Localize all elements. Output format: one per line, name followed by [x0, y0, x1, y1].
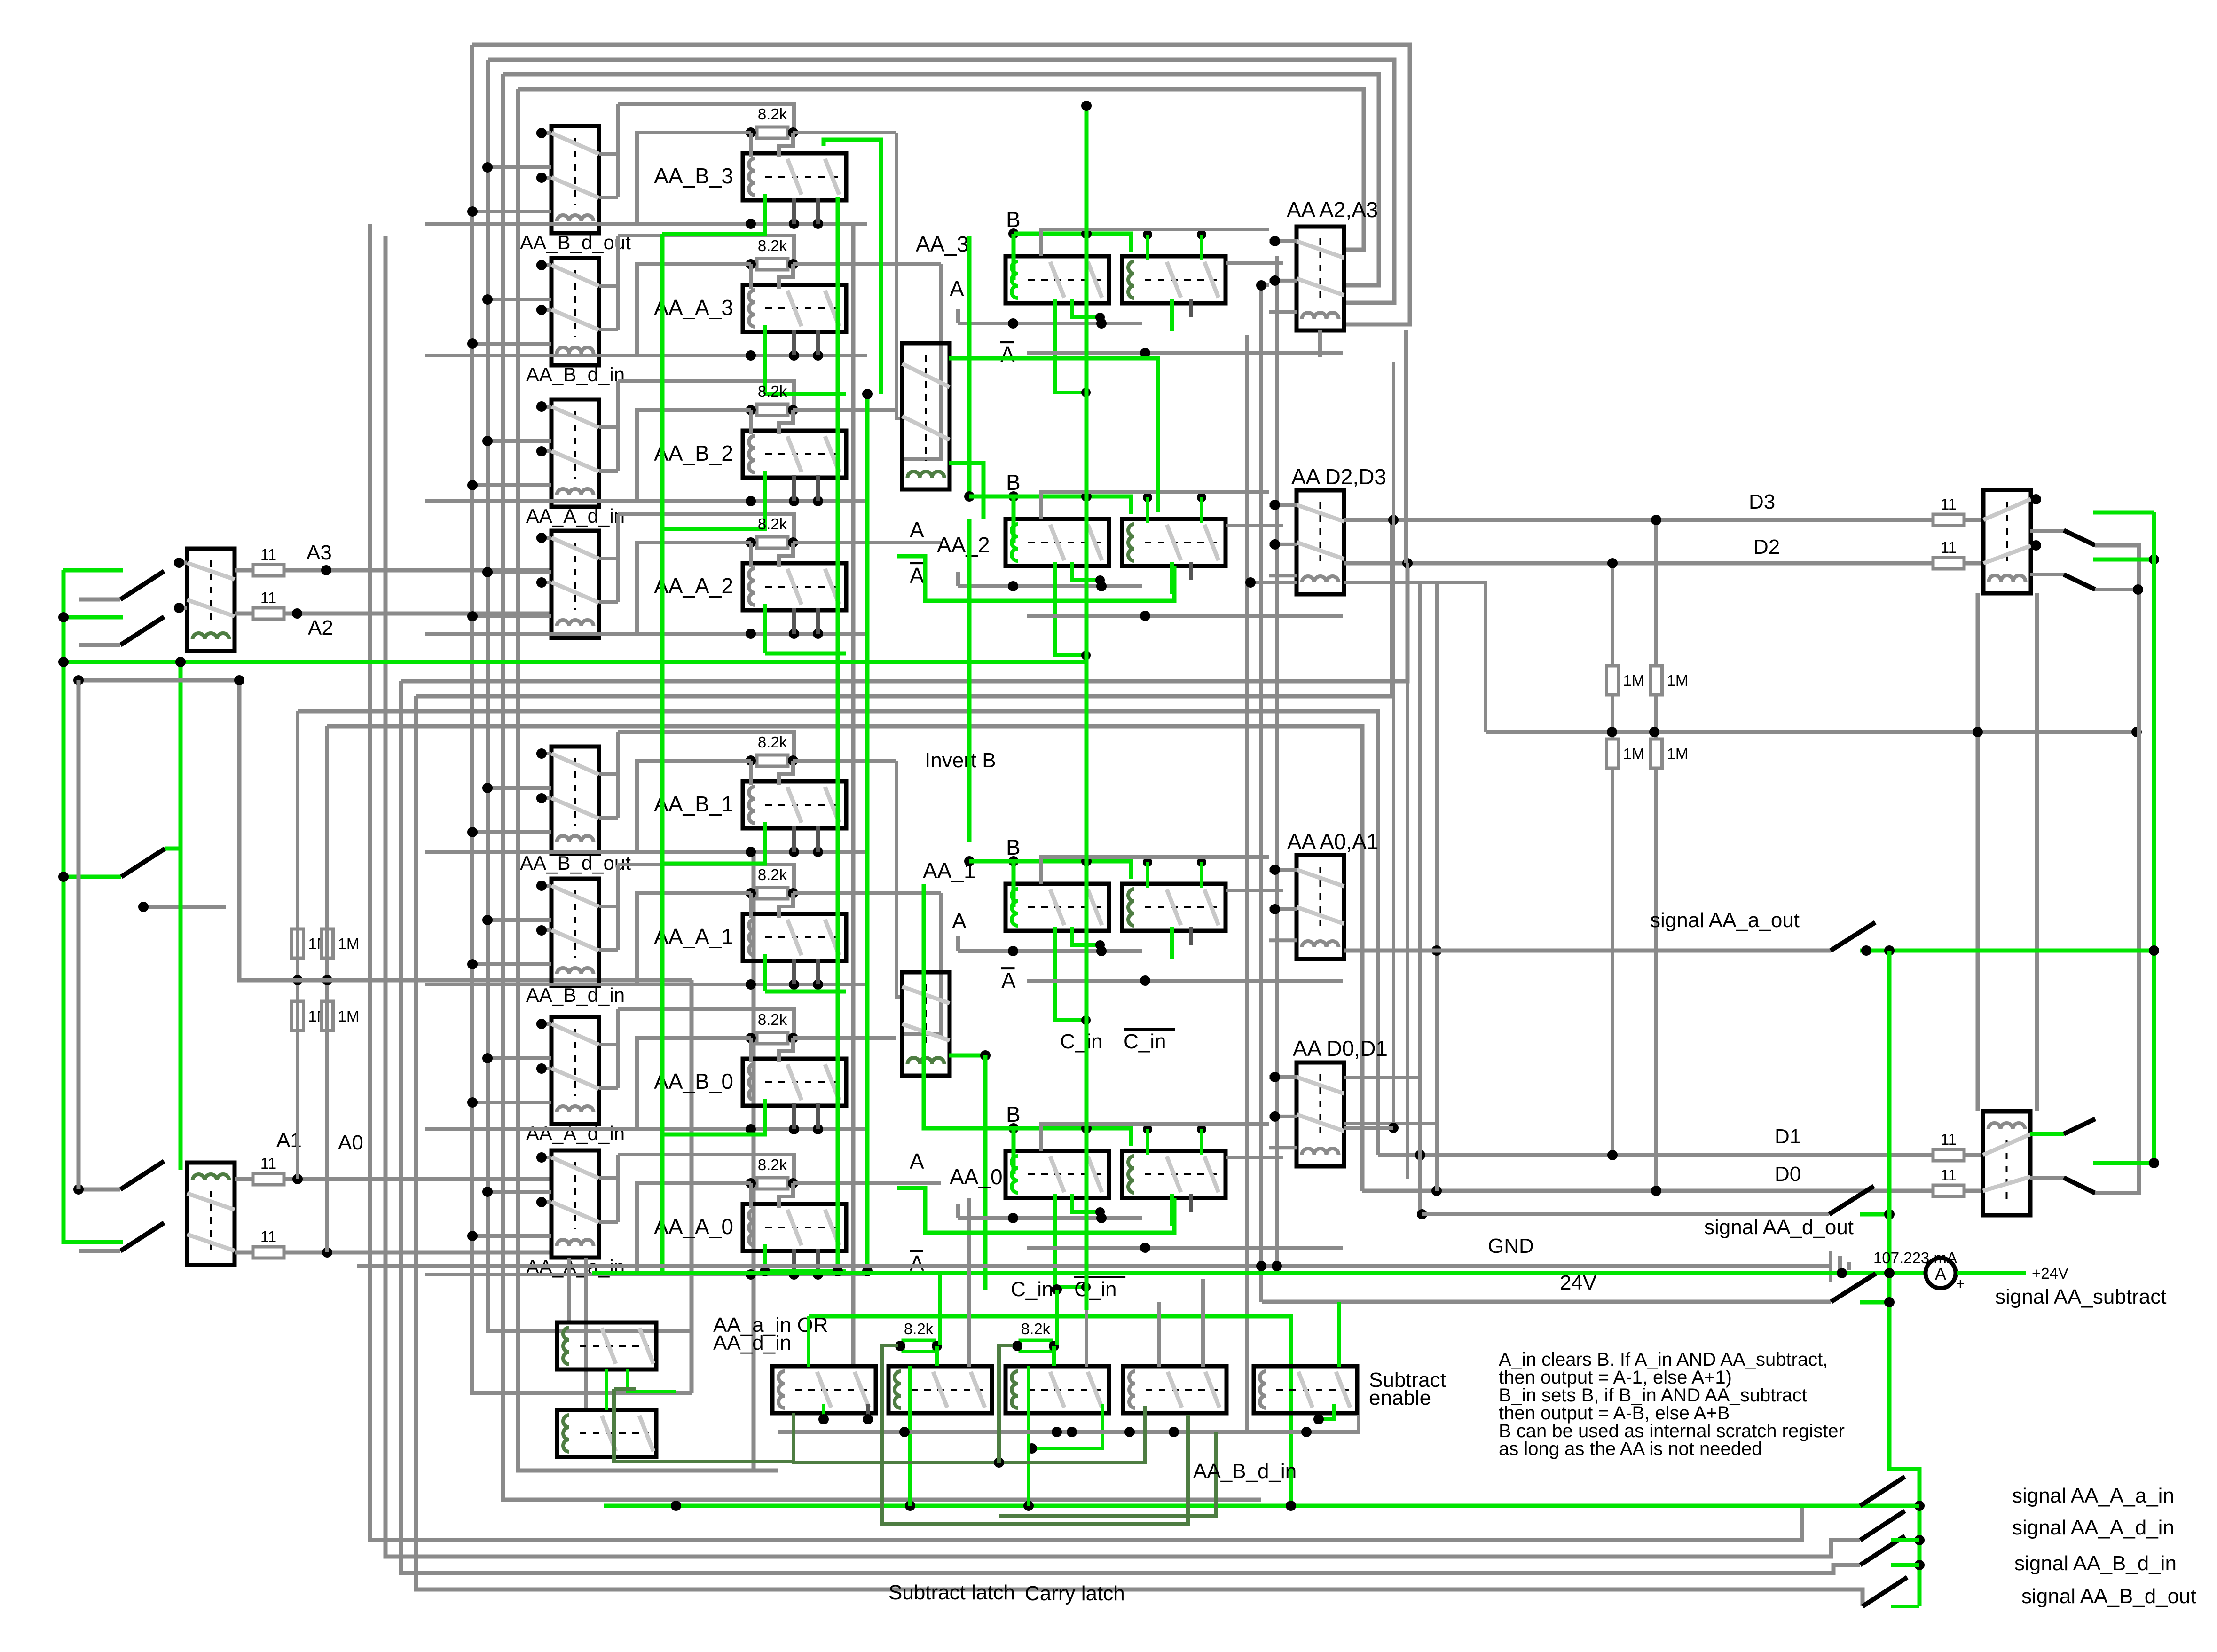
svg-text:24V: 24V: [1560, 1271, 1597, 1294]
svg-text:signal AA_A_d_in: signal AA_A_d_in: [2012, 1516, 2174, 1539]
svg-text:AA_A_1: AA_A_1: [654, 924, 733, 949]
svg-text:1M: 1M: [1623, 672, 1645, 689]
svg-text:AA A0,A1: AA A0,A1: [1287, 829, 1378, 854]
svg-text:D1: D1: [1775, 1125, 1801, 1148]
svg-text:AA D0,D1: AA D0,D1: [1293, 1036, 1388, 1061]
svg-text:signal AA_B_d_out: signal AA_B_d_out: [2021, 1585, 2196, 1608]
svg-text:11: 11: [1941, 1166, 1957, 1184]
svg-text:11: 11: [1941, 1131, 1957, 1148]
svg-text:1M: 1M: [1667, 745, 1689, 763]
svg-text:8.2k: 8.2k: [904, 1320, 934, 1337]
svg-text:8.2k: 8.2k: [758, 733, 787, 751]
svg-text:11: 11: [260, 589, 276, 606]
svg-text:1M: 1M: [338, 935, 360, 952]
svg-text:A: A: [950, 276, 964, 301]
svg-text:D2: D2: [1753, 535, 1780, 559]
svg-text:C_in: C_in: [1060, 1030, 1103, 1053]
svg-text:+: +: [1956, 1275, 1965, 1292]
svg-text:AA_2: AA_2: [937, 533, 990, 557]
svg-text:as long as the AA is not neede: as long as the AA is not needed: [1499, 1439, 1762, 1459]
svg-text:AA_d_in: AA_d_in: [713, 1331, 791, 1354]
svg-text:A0: A0: [338, 1131, 363, 1154]
svg-text:C_in: C_in: [1011, 1278, 1053, 1301]
svg-text:A3: A3: [307, 541, 332, 564]
svg-text:A: A: [910, 563, 924, 588]
svg-text:8.2k: 8.2k: [758, 383, 787, 400]
svg-text:AA_A_3: AA_A_3: [654, 295, 733, 320]
svg-text:AA_A_d_in: AA_A_d_in: [526, 505, 625, 527]
svg-text:AA_B_2: AA_B_2: [654, 441, 733, 465]
svg-text:AA_B_0: AA_B_0: [654, 1069, 733, 1093]
svg-text:AA_B_d_out: AA_B_d_out: [520, 852, 631, 874]
svg-text:AA A2,A3: AA A2,A3: [1287, 197, 1378, 222]
svg-text:AA_B_d_in: AA_B_d_in: [526, 984, 625, 1006]
svg-text:107.223 mA: 107.223 mA: [1873, 1249, 1957, 1267]
svg-text:Invert B: Invert B: [925, 749, 996, 772]
svg-text:8.2k: 8.2k: [1021, 1320, 1051, 1337]
svg-text:8.2k: 8.2k: [758, 1156, 787, 1173]
svg-text:D0: D0: [1775, 1163, 1801, 1186]
svg-text:AA_B_d_out: AA_B_d_out: [520, 231, 631, 253]
svg-text:+24V: +24V: [2032, 1265, 2068, 1282]
svg-text:AA D2,D3: AA D2,D3: [1291, 464, 1386, 489]
svg-text:11: 11: [260, 1155, 276, 1172]
svg-text:AA_A_2: AA_A_2: [654, 574, 733, 598]
svg-text:AA_3: AA_3: [916, 232, 969, 256]
svg-text:AA_A_0: AA_A_0: [654, 1214, 733, 1239]
svg-text:B: B: [1006, 207, 1021, 232]
svg-text:Carry latch: Carry latch: [1025, 1582, 1125, 1605]
svg-text:1M: 1M: [1623, 745, 1645, 763]
svg-text:D3: D3: [1749, 490, 1775, 513]
svg-text:signal AA_d_out: signal AA_d_out: [1704, 1216, 1854, 1239]
svg-text:AA_0: AA_0: [950, 1164, 1003, 1189]
svg-text:signal AA_a_out: signal AA_a_out: [1650, 909, 1800, 932]
svg-text:B: B: [1006, 1102, 1021, 1126]
svg-text:Subtract latch: Subtract latch: [888, 1581, 1015, 1604]
svg-text:AA_B_3: AA_B_3: [654, 164, 733, 188]
svg-text:AA_B_d_in: AA_B_d_in: [526, 363, 625, 385]
svg-text:A2: A2: [308, 616, 333, 639]
svg-text:AA_B_1: AA_B_1: [654, 792, 733, 816]
svg-text:11: 11: [1941, 539, 1957, 556]
svg-text:C_in: C_in: [1124, 1030, 1166, 1053]
svg-text:A: A: [910, 518, 924, 542]
svg-text:A: A: [1935, 1264, 1946, 1283]
svg-text:signal AA_B_d_in: signal AA_B_d_in: [2014, 1552, 2177, 1575]
svg-text:8.2k: 8.2k: [758, 237, 787, 254]
svg-text:1M: 1M: [1667, 672, 1689, 689]
svg-text:A: A: [952, 909, 967, 933]
svg-text:8.2k: 8.2k: [758, 866, 787, 883]
svg-text:signal AA_A_a_in: signal AA_A_a_in: [2012, 1484, 2174, 1507]
svg-text:A: A: [910, 1149, 924, 1173]
svg-text:11: 11: [260, 546, 276, 563]
svg-text:GND: GND: [1488, 1235, 1534, 1258]
svg-text:8.2k: 8.2k: [758, 1011, 787, 1028]
svg-text:11: 11: [1941, 496, 1957, 513]
svg-text:AA_B_d_in: AA_B_d_in: [1193, 1460, 1297, 1483]
svg-text:B: B: [1006, 835, 1021, 859]
svg-text:enable: enable: [1369, 1386, 1431, 1409]
svg-text:1M: 1M: [338, 1007, 360, 1025]
svg-text:AA_A_d_in: AA_A_d_in: [526, 1122, 625, 1144]
svg-text:8.2k: 8.2k: [758, 515, 787, 533]
svg-text:A: A: [1001, 968, 1016, 993]
svg-text:8.2k: 8.2k: [758, 105, 787, 123]
svg-text:A: A: [1000, 342, 1015, 367]
svg-text:C_in: C_in: [1074, 1278, 1117, 1301]
svg-text:11: 11: [260, 1228, 276, 1245]
svg-text:B: B: [1006, 470, 1021, 495]
svg-text:signal AA_subtract: signal AA_subtract: [1995, 1285, 2166, 1308]
